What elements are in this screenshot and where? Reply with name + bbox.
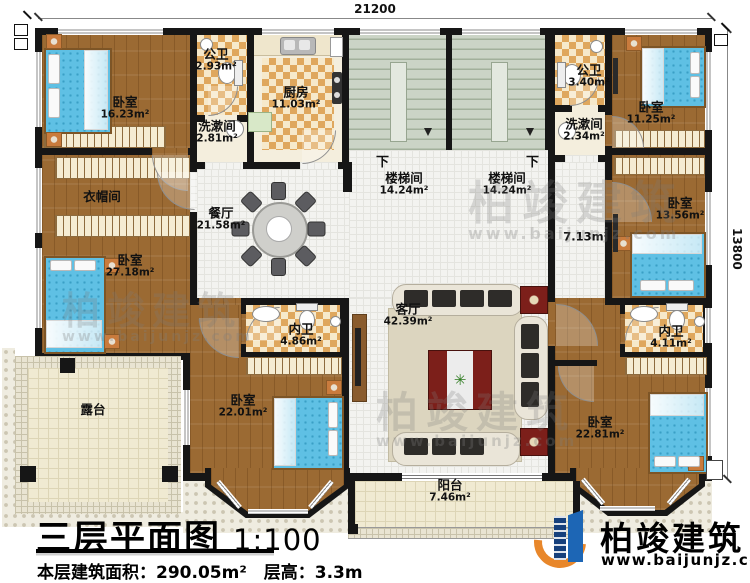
room-label-ensuite-2: 内卫4.11m²: [650, 324, 691, 349]
tv-icon: [355, 328, 361, 386]
bed-pillow: [678, 456, 700, 467]
bed-pillow: [48, 54, 60, 84]
sofa-cushion: [521, 353, 539, 378]
plan-area-line: 本层建筑面积：290.05m² 层高：3.3m: [37, 558, 363, 583]
window: [58, 28, 163, 35]
terrace-floor: [28, 368, 168, 502]
ac-unit: [706, 460, 723, 480]
bed-pillow: [668, 280, 694, 291]
corner-marker: [14, 24, 28, 36]
end-table: [520, 286, 548, 314]
bed-pillow: [328, 402, 338, 428]
stair-rail: [491, 62, 508, 142]
bed-blanket: [650, 394, 704, 416]
bedroom-3-door-opening: [605, 180, 612, 220]
bath-2-door-opening: [572, 105, 598, 112]
window: [35, 168, 42, 233]
bed-pillow: [50, 260, 72, 271]
kitchen-fridge: [330, 37, 343, 57]
closet-bedroom-5: [625, 357, 707, 375]
bedroom-4-hall-opening: [199, 298, 241, 305]
wall-stub-dining: [343, 162, 352, 192]
room-label-bedroom-3: 卧室27.18m²: [106, 253, 155, 278]
bed-pillow: [640, 280, 666, 291]
toilet-tank: [557, 62, 566, 88]
logo-tower-light: [568, 510, 583, 562]
closet-wardrobe-bottom: [55, 215, 190, 237]
terrace-post: [162, 466, 178, 482]
stair-direction-arrow: [526, 128, 534, 136]
window: [35, 248, 42, 328]
nightstand: [626, 36, 642, 51]
bed-pillow: [690, 52, 700, 74]
corner-marker-tick: [23, 10, 32, 19]
tv-icon: [613, 214, 618, 252]
bed-pillow: [690, 76, 700, 98]
room-label-corridor: 7.13m²: [563, 231, 608, 244]
living-hall-door-opening: [548, 302, 555, 346]
bedroom-1-door-opening: [152, 148, 188, 155]
bed-pillow: [328, 430, 338, 456]
washroom-2-opening: [565, 155, 598, 162]
vanity-sink: [630, 306, 658, 322]
window: [462, 28, 540, 35]
plan-title: 三层平面图1:100: [36, 510, 322, 561]
room-label-public-bath-2: 公卫3.40m²: [568, 63, 609, 88]
bed-pillow: [74, 260, 96, 271]
window: [183, 390, 190, 445]
room-label-wardrobe: 衣帽间: [83, 190, 121, 204]
sofa-cushion: [488, 290, 512, 307]
stove-burner: [334, 77, 340, 83]
corner-marker: [714, 34, 728, 46]
room-label-bedroom-5: 卧室22.81m²: [576, 415, 625, 440]
bedroom-2-door-opening: [605, 115, 612, 146]
dining-table-center: [266, 216, 292, 242]
window: [705, 192, 712, 265]
room-label-bedroom-1: 卧室16.23m²: [101, 95, 150, 120]
room-label-living: 客厅42.39m²: [384, 302, 433, 327]
closet-bedroom-4: [246, 357, 342, 375]
dining-chair: [271, 182, 286, 200]
dining-chair: [308, 222, 326, 237]
logo-tower-dark: [554, 516, 566, 560]
balcony-sliding-door: [402, 473, 542, 481]
bed-blanket: [642, 48, 664, 104]
sofa-cushion: [521, 324, 539, 349]
brand-url: www.baijunjz.com: [601, 551, 750, 569]
room-label-stairwell-1: 楼梯间14.24m²: [380, 171, 429, 196]
shower-head: [330, 316, 341, 327]
balcony-post: [348, 524, 358, 534]
stair-down-label: 下: [526, 151, 539, 170]
window: [705, 52, 712, 130]
stove-burner: [334, 92, 340, 98]
sofa-cushion: [432, 290, 456, 307]
terrace-post: [20, 466, 36, 482]
kitchen-sink-basin: [284, 40, 295, 50]
dimension-top-label: 21200: [340, 2, 410, 16]
kitchen-mat: [248, 112, 272, 132]
corner-marker-tick: [721, 22, 730, 31]
shower-head: [590, 40, 603, 53]
room-label-bedroom-4: 卧室22.01m²: [219, 393, 268, 418]
vanity-sink: [252, 306, 280, 322]
dimension-right-label: 13800: [730, 228, 744, 270]
bed-blanket: [632, 234, 702, 254]
nightstand: [104, 334, 120, 349]
tv-icon: [613, 58, 618, 94]
room-label-terrace: 露台: [80, 403, 105, 417]
room-label-bedroom-right: 卧室13.56m²: [656, 196, 705, 221]
room-label-ensuite-1: 内卫4.86m²: [280, 322, 321, 347]
stair-direction-arrow: [424, 128, 432, 136]
dimension-line-right: [727, 30, 728, 480]
nightstand: [616, 236, 631, 251]
bay-window-glass: [600, 506, 655, 511]
room-label-stairwell-2: 楼梯间14.24m²: [483, 171, 532, 196]
room-label-washroom-2: 洗漱间2.34m²: [563, 117, 604, 142]
room-label-balcony: 阳台7.46m²: [429, 478, 470, 503]
dimension-line-top: [38, 18, 712, 19]
terrace-post: [60, 358, 75, 373]
room-label-public-bath-1: 公卫2.93m²: [195, 47, 236, 72]
room-label-dining: 餐厅21.58m²: [197, 206, 246, 231]
brand-logo-icon: [534, 508, 594, 574]
bed-blanket: [274, 398, 296, 466]
dimension-tick: [707, 12, 716, 21]
window: [360, 28, 440, 35]
closet-bedroom-3: [614, 157, 705, 175]
room-label-kitchen: 厨房11.03m²: [272, 85, 321, 110]
dining-chair: [271, 258, 286, 276]
room-label-washroom-1: 洗漱间2.81m²: [196, 119, 237, 144]
window: [625, 28, 697, 35]
shower-head: [694, 316, 705, 327]
bed-pillow: [48, 88, 60, 118]
sofa-cushion: [404, 438, 428, 455]
window: [705, 308, 712, 343]
title-underline: [36, 549, 274, 553]
window: [262, 28, 334, 35]
sofa-cushion: [521, 382, 539, 407]
kitchen-sink-basin: [299, 40, 310, 50]
bed-blanket: [46, 320, 102, 348]
window: [35, 52, 42, 127]
sofa-cushion: [460, 438, 484, 455]
nightstand: [46, 132, 62, 147]
floor-plan-canvas: 21200 13800: [0, 0, 750, 583]
stair-down-label: 下: [376, 151, 389, 170]
dimension-tick: [34, 12, 43, 21]
washroom-1-opening: [205, 162, 243, 169]
paving-apron-left: [2, 348, 15, 524]
coffee-table: ✳: [428, 350, 492, 410]
stair-rail: [390, 62, 407, 142]
corner-marker: [14, 38, 28, 50]
nightstand: [326, 380, 342, 395]
sofa-cushion: [460, 290, 484, 307]
sofa-cushion: [432, 438, 456, 455]
bed-pillow: [654, 456, 676, 467]
end-table: [520, 428, 548, 456]
nightstand: [46, 34, 62, 49]
room-label-bedroom-2: 卧室11.25m²: [627, 100, 676, 125]
